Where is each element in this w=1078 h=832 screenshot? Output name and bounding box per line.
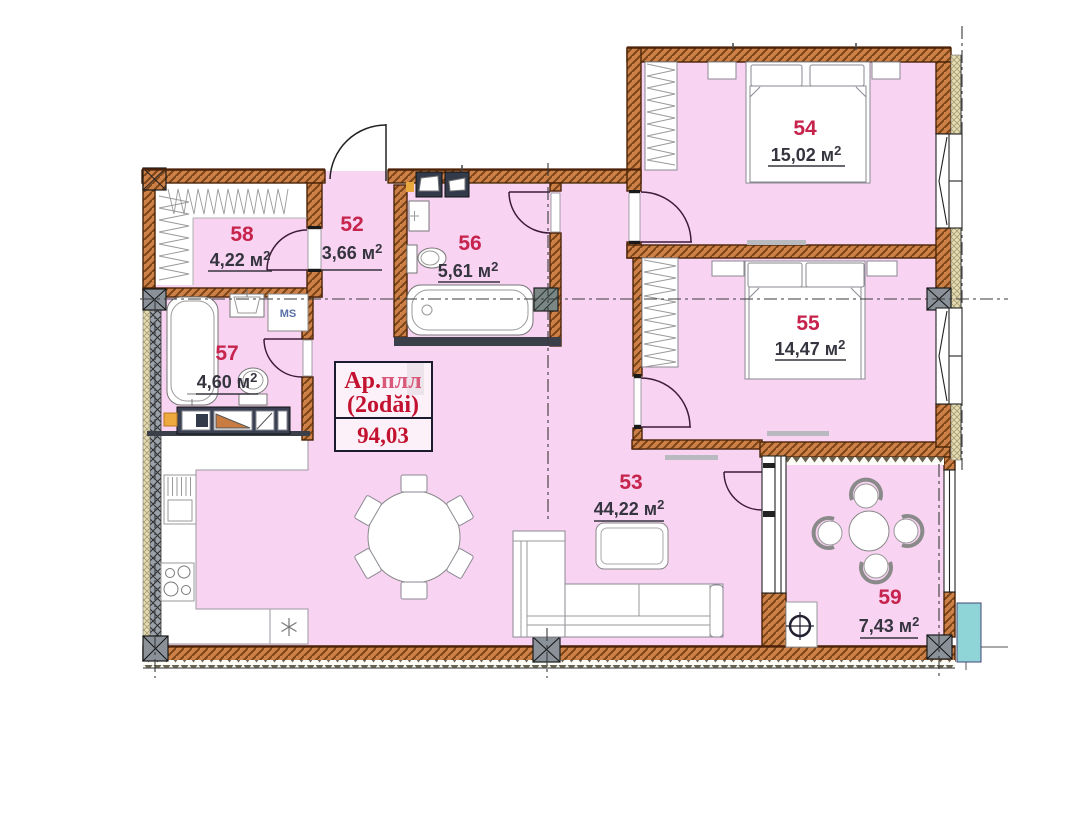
svg-text:44,22 м2: 44,22 м2 <box>594 497 665 519</box>
svg-text:(2odăi): (2odăi) <box>347 392 419 418</box>
svg-text:94,03: 94,03 <box>357 423 409 448</box>
svg-text:58: 58 <box>230 223 254 246</box>
svg-text:15,02 м2: 15,02 м2 <box>771 143 842 165</box>
svg-text:59: 59 <box>878 586 901 609</box>
svg-text:4,22 м2: 4,22 м2 <box>210 248 271 270</box>
svg-text:MS: MS <box>280 308 297 320</box>
svg-text:4,60 м2: 4,60 м2 <box>197 370 258 392</box>
svg-text:5,61 м2: 5,61 м2 <box>438 259 499 281</box>
svg-text:56: 56 <box>458 232 481 255</box>
svg-text:55: 55 <box>796 312 820 335</box>
svg-text:52: 52 <box>340 213 363 236</box>
svg-text:7,43 м2: 7,43 м2 <box>859 614 920 636</box>
svg-text:Ар.плл: Ар.плл <box>344 368 421 394</box>
svg-text:57: 57 <box>215 342 238 365</box>
svg-text:3,66 м2: 3,66 м2 <box>322 241 383 263</box>
svg-text:54: 54 <box>793 117 817 140</box>
svg-text:14,47 м2: 14,47 м2 <box>775 337 846 359</box>
svg-text:53: 53 <box>619 471 642 494</box>
